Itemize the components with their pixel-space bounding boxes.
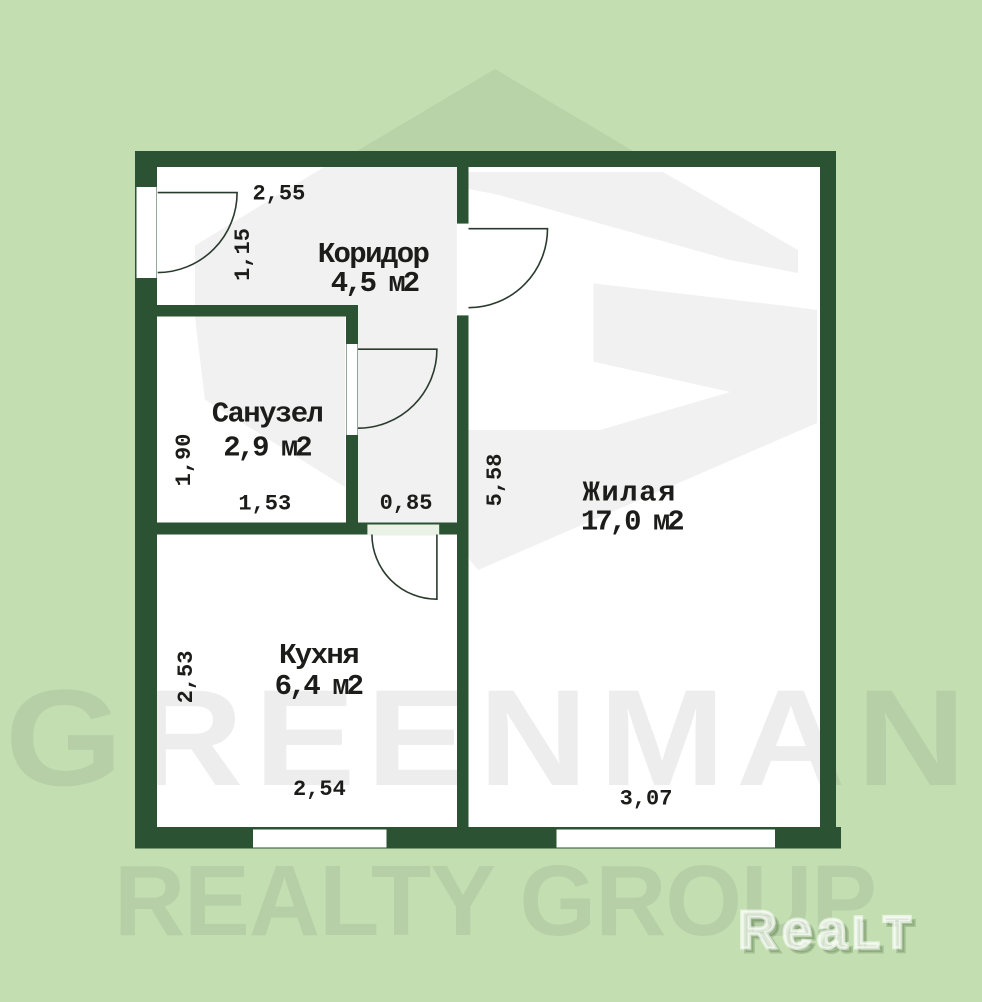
svg-text:6,4 м2: 6,4 м2 xyxy=(275,670,363,703)
svg-text:ReaLT: ReaLT xyxy=(738,900,918,960)
svg-text:17,0 м2: 17,0 м2 xyxy=(581,506,683,539)
svg-text:2,9 м2: 2,9 м2 xyxy=(223,432,311,465)
svg-text:0,85: 0,85 xyxy=(380,491,433,516)
svg-text:Кухня: Кухня xyxy=(279,639,358,672)
svg-text:5,58: 5,58 xyxy=(483,454,508,507)
svg-text:Санузел: Санузел xyxy=(212,398,323,431)
svg-text:4,5 м2: 4,5 м2 xyxy=(331,267,419,300)
svg-text:2,54: 2,54 xyxy=(293,777,346,802)
svg-text:2,55: 2,55 xyxy=(252,182,305,207)
svg-text:1,53: 1,53 xyxy=(238,491,291,516)
svg-text:2,53: 2,53 xyxy=(174,651,199,704)
svg-text:1,15: 1,15 xyxy=(231,228,256,281)
svg-text:1,90: 1,90 xyxy=(172,434,197,487)
svg-text:3,07: 3,07 xyxy=(620,787,673,812)
